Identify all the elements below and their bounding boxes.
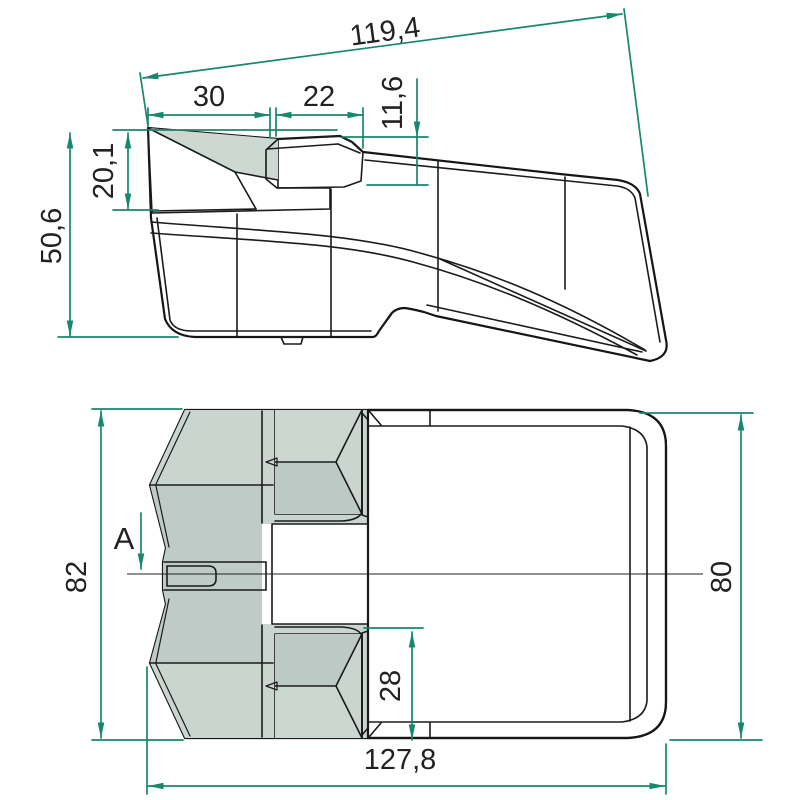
dim-label-82: 82	[61, 561, 93, 593]
side-boss	[266, 136, 363, 188]
side-body-lines	[151, 160, 660, 355]
dim-boss-height: 11,6	[342, 76, 428, 185]
drawing-svg: 119,4 30 22 11,6 20,1	[0, 0, 800, 800]
section-a-marker: A	[114, 513, 141, 569]
dim-label-119-4: 119,4	[348, 11, 422, 52]
side-boss-bevels	[267, 144, 360, 153]
dim-label-28: 28	[375, 670, 407, 702]
dim-label-30: 30	[193, 81, 225, 113]
side-tip-upper-facet	[148, 128, 278, 180]
section-a-label: A	[114, 521, 135, 556]
technical-drawing-canvas: 119,4 30 22 11,6 20,1	[0, 0, 800, 800]
dim-label-22: 22	[303, 81, 335, 113]
dim-label-20-1: 20,1	[88, 143, 120, 199]
side-view	[148, 128, 667, 361]
dim-label-11-6: 11,6	[377, 76, 409, 130]
dim-boss-width: 28	[364, 628, 423, 740]
dim-label-50-6: 50,6	[36, 208, 68, 264]
dim-rear-width: 80	[640, 413, 762, 740]
dim-label-127-8: 127,8	[364, 744, 437, 776]
dim-label-80: 80	[706, 561, 738, 593]
plan-view	[127, 410, 703, 738]
